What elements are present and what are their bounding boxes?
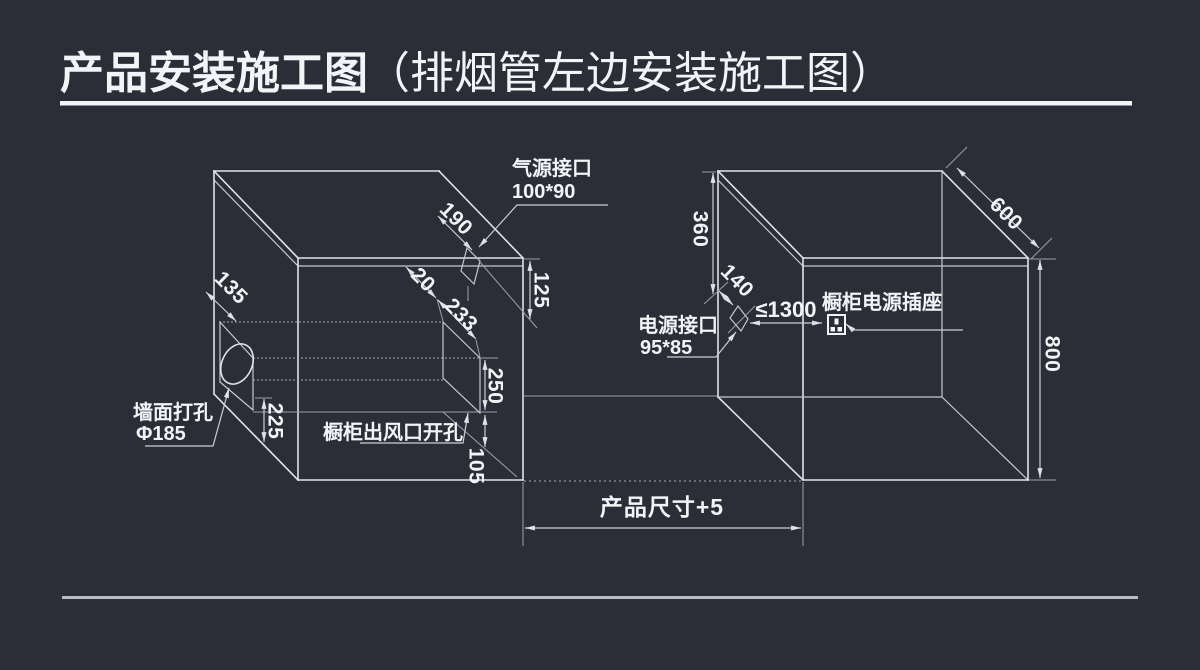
footer-divider-line <box>62 596 1138 599</box>
ext-line-360-bottom <box>704 282 728 304</box>
dim-text-140: 140 <box>716 260 758 302</box>
power-port-label-line2: 95*85 <box>640 337 692 359</box>
wall-hole-label-line1: 墙面打孔 <box>133 400 213 424</box>
title-underline <box>60 101 1132 106</box>
dim-text-105: 105 <box>465 448 488 485</box>
installation-diagram-page: 产品安装施工图 （排烟管左边安装施工图） 135 <box>0 0 1200 670</box>
page-title: 产品安装施工图 <box>60 49 368 98</box>
right-box-topleft-receding-edge-inner <box>718 180 803 266</box>
power-port-label-line1: 电源接口 <box>638 314 718 337</box>
gas-port-leader-line <box>479 205 608 247</box>
dim-text-125: 125 <box>530 272 553 309</box>
left-cabinet-figure: 135 190 125 20 233 250 105 225 气源接口 100*… <box>133 156 608 484</box>
dim-text-20: 20 <box>406 263 439 296</box>
diagram-canvas: 产品安装施工图 （排烟管左边安装施工图） 135 <box>0 0 1200 670</box>
power-socket-icon <box>828 315 845 334</box>
title-block: 产品安装施工图 （排烟管左边安装施工图） <box>60 49 1132 106</box>
vent-opening-outline <box>443 322 480 413</box>
right-cabinet-figure: 360 140 电源接口 95*85 ≤1300 橱柜电源插座 600 80 <box>638 147 1064 480</box>
ext-line-gas-to-125 <box>480 262 537 328</box>
dim-text-1300: ≤1300 <box>755 297 816 322</box>
dim-text-product-width: 产品尺寸+5 <box>600 494 724 520</box>
page-title-subtitle: （排烟管左边安装施工图） <box>366 49 894 98</box>
gas-port-label-line2: 100*90 <box>512 181 575 203</box>
gas-port-label-line1: 气源接口 <box>511 156 592 180</box>
duct-protrusion-outline <box>220 322 253 410</box>
power-port-opening <box>730 306 748 331</box>
wall-hole-label-line2: Φ185 <box>136 423 186 445</box>
floor-and-bottom-dimension: 产品尺寸+5 <box>523 396 803 546</box>
socket-label: 橱柜电源插座 <box>822 290 942 314</box>
dim-text-233: 233 <box>440 294 482 336</box>
left-box-topleft-receding-edge-inner <box>214 180 298 266</box>
dim-text-800: 800 <box>1041 336 1064 373</box>
left-box-topleft-receding-edge <box>214 171 298 258</box>
dim-text-225: 225 <box>264 403 287 440</box>
dim-text-360: 360 <box>689 211 712 248</box>
right-box-bottomleft-receding-edge <box>718 397 803 480</box>
right-box-topleft-receding-edge <box>718 171 803 258</box>
dim-text-250: 250 <box>484 368 507 405</box>
right-box-bottomright-receding-edge <box>942 397 1028 480</box>
socket-leader-line <box>846 324 963 330</box>
dim-text-600: 600 <box>985 193 1027 235</box>
vent-opening-label: 橱柜出风口开孔 <box>323 420 463 444</box>
dim-line-140 <box>719 291 733 305</box>
